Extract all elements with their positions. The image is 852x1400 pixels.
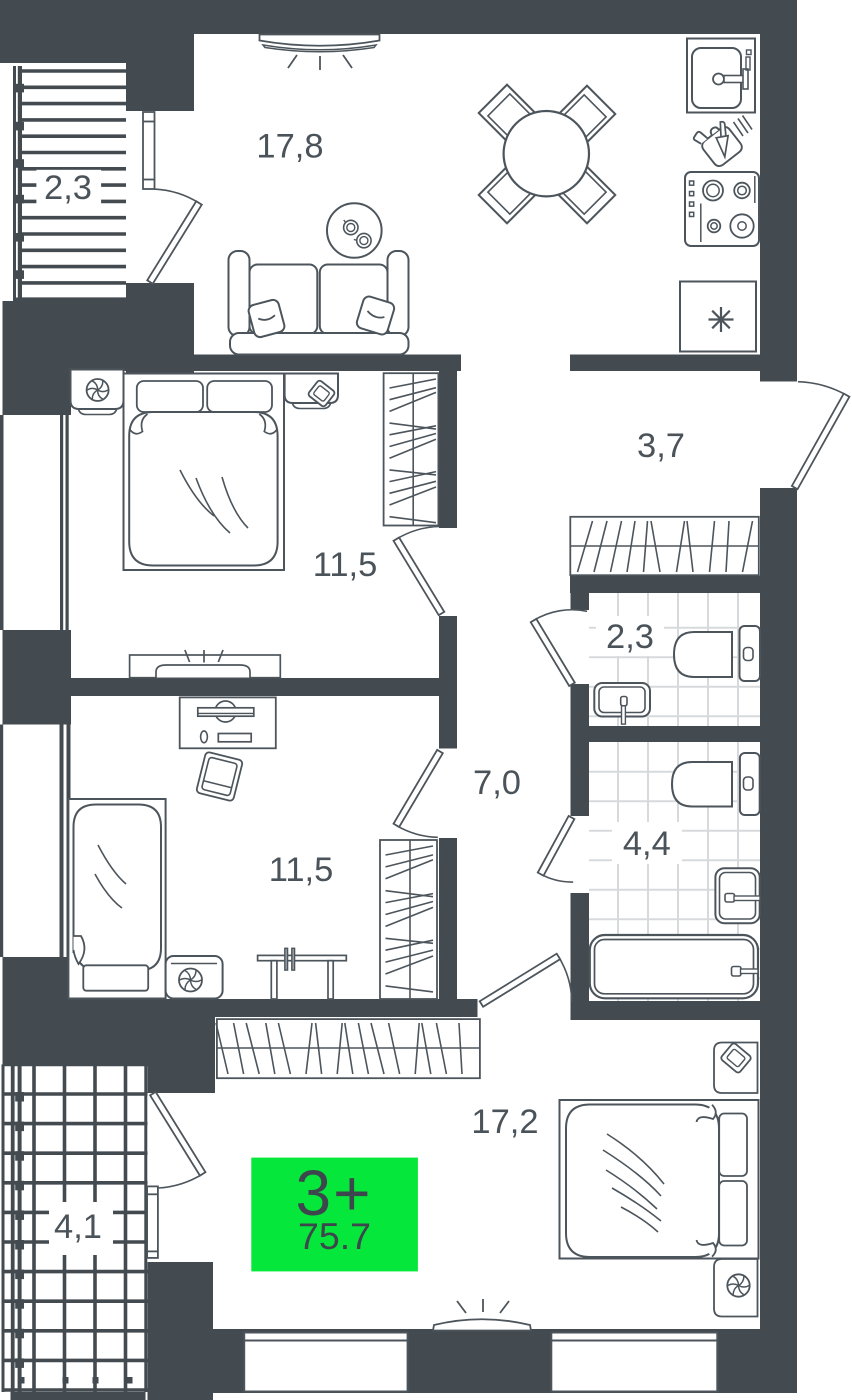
svg-text:11,5: 11,5 [269,851,334,889]
svg-text:2,3: 2,3 [44,169,92,207]
svg-text:4,4: 4,4 [623,825,671,863]
svg-text:17,8: 17,8 [256,128,323,166]
svg-text:3,7: 3,7 [637,427,685,465]
svg-text:11,5: 11,5 [313,546,378,584]
svg-text:4,1: 4,1 [54,1208,102,1246]
svg-text:2,3: 2,3 [606,618,654,656]
svg-text:7,0: 7,0 [473,764,521,802]
svg-text:75.7: 75.7 [298,1215,371,1257]
svg-text:17,2: 17,2 [471,1103,538,1141]
